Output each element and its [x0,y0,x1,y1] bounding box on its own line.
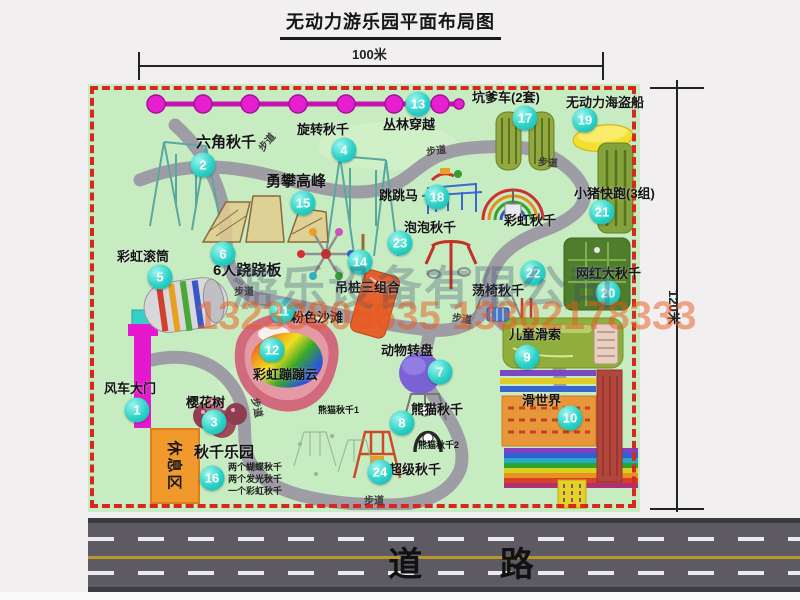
label-animal-turntable: 动物转盘 [381,340,433,359]
label-panda-swing-2: 熊猫秋千2 [418,438,459,451]
marker-4: 4 [332,138,357,163]
dimension-tick-right [602,52,604,80]
swing-park-notes: 两个蝴蝶秋千 两个发光秋千 一个彩虹秋千 [228,461,282,497]
label-piggy-run: 小猪快跑(3组) [574,183,655,202]
rest-area: 休息区 [150,428,200,504]
label-rainbow-cloud: 彩虹蹦蹦云 [253,364,318,383]
marker-7: 7 [428,360,453,385]
dimension-label-height: 120米 [665,290,684,325]
label-rainbow-roller: 彩虹滚筒 [117,246,169,265]
marker-2: 2 [191,153,216,178]
label-swing-park: 秋千乐园 [194,441,254,462]
label-kengdie-car: 坑爹车(2套) [472,87,540,106]
note-line: 一个彩虹秋千 [228,485,282,497]
road-label: 道 路 [388,537,567,586]
marker-15: 15 [291,191,316,216]
marker-21: 21 [590,200,615,225]
page-margin-bottom [0,592,800,600]
marker-19: 19 [573,108,598,133]
label-jungle-crossing: 丛林穿越 [383,114,435,133]
label-big-swing: 网红大秋千 [576,263,641,282]
dimension-tick-top [650,87,704,89]
label-panda-swing: 熊猫秋千 [411,399,463,418]
marker-17: 17 [513,106,538,131]
marker-16: 16 [200,466,225,491]
label-rotating-swing: 旋转秋千 [297,119,349,138]
label-pink-beach: 粉色沙滩 [291,307,343,326]
note-line: 两个蝴蝶秋千 [228,461,282,473]
label-cherry-tree: 樱花树 [186,392,225,411]
marker-23: 23 [388,231,413,256]
dimension-tick-left [138,52,140,80]
label-swing-chair: 荡椅秋千 [472,280,524,299]
footpath-label: 步道 [234,283,254,298]
label-panda-swing-1: 熊猫秋千1 [318,403,359,416]
dimension-line-horizontal [138,65,604,67]
bubble-swing-icon [426,242,476,290]
marker-18: 18 [425,185,450,210]
label-bubble-swing: 泡泡秋千 [404,217,456,236]
marker-13: 13 [406,92,431,117]
marker-12: 12 [260,338,285,363]
marker-22: 22 [521,261,546,286]
footpath-label: 步道 [538,153,559,169]
marker-14: 14 [348,250,373,275]
label-pirate-ship: 无动力海盗船 [566,92,644,111]
dimension-tick-bottom [650,508,704,510]
label-slide-world: 滑世界 [522,390,561,409]
playground-layout-page: { "title": "无动力游乐园平面布局图", "dimensions": … [0,0,800,600]
marker-1: 1 [125,398,150,423]
footpath-label: 步道 [451,309,473,327]
slide-world-icon [500,370,638,508]
label-rainbow-swing: 彩虹秋千 [504,210,556,229]
marker-24: 24 [368,460,393,485]
footpath-label: 步道 [364,492,384,507]
marker-11: 11 [270,299,295,324]
label-hanging-post: 吊桩三组合 [335,277,400,296]
page-title: 无动力游乐园平面布局图 [280,8,501,40]
label-climbing-peak: 勇攀高峰 [266,170,326,191]
label-super-swing: 超级秋千 [389,459,441,478]
footpath-label: 步道 [425,141,447,159]
marker-6: 6 [211,242,236,267]
dimension-label-width: 100米 [352,44,387,63]
rest-area-label: 休息区 [165,440,186,491]
marker-3: 3 [202,410,227,435]
marker-9: 9 [515,345,540,370]
label-hexagon-swing: 六角秋千 [196,131,256,152]
label-windmill-gate: 风车大门 [104,378,156,397]
marker-10: 10 [558,406,583,431]
marker-5: 5 [148,265,173,290]
road: 道 路 [88,518,800,592]
marker-8: 8 [390,411,415,436]
label-kids-zipline: 儿童滑索 [509,324,561,343]
marker-20: 20 [596,281,621,306]
label-jumping-horse: 跳跳马 [379,185,418,204]
note-line: 两个发光秋千 [228,473,282,485]
